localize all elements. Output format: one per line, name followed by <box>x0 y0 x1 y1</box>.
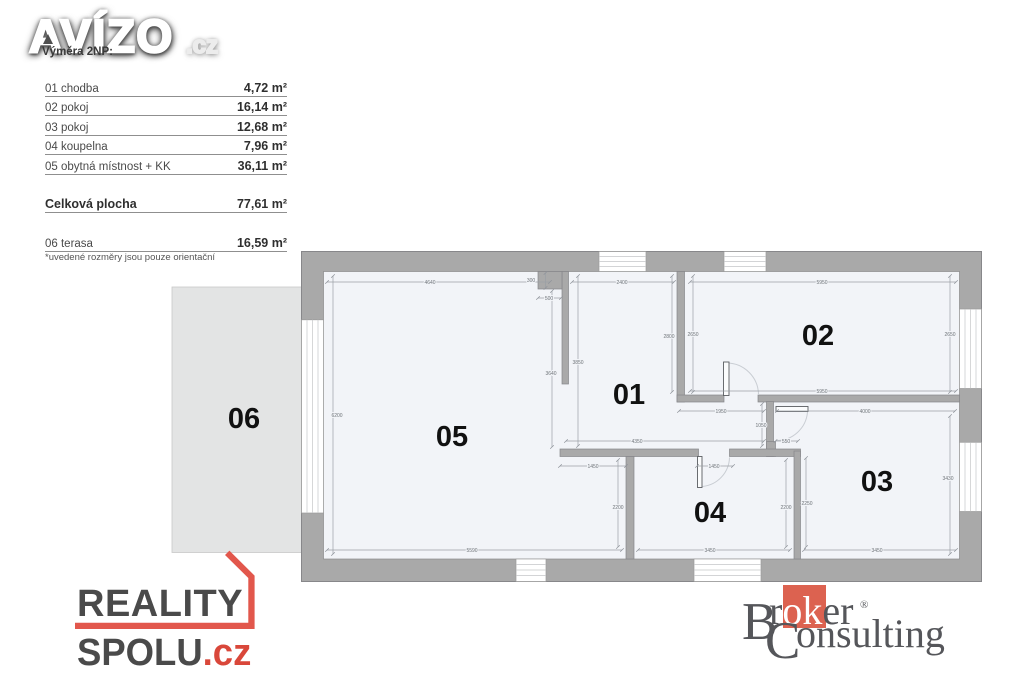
svg-text:500: 500 <box>545 296 554 302</box>
svg-text:01: 01 <box>613 379 645 411</box>
svg-text:4640: 4640 <box>424 280 435 286</box>
svg-text:05: 05 <box>436 421 468 453</box>
svg-text:4000: 4000 <box>859 409 870 415</box>
svg-text:3850: 3850 <box>572 360 583 366</box>
svg-text:2800: 2800 <box>663 334 674 340</box>
svg-text:1950: 1950 <box>715 409 726 415</box>
svg-text:02: 02 <box>802 320 834 352</box>
svg-text:6200: 6200 <box>331 413 342 419</box>
svg-text:2200: 2200 <box>780 505 791 511</box>
svg-text:300: 300 <box>527 278 536 284</box>
svg-text:1050: 1050 <box>755 423 766 429</box>
svg-text:2400: 2400 <box>616 280 627 286</box>
svg-text:03: 03 <box>861 466 893 498</box>
svg-text:1450: 1450 <box>587 464 598 470</box>
svg-text:550: 550 <box>782 439 791 445</box>
svg-text:3450: 3450 <box>704 548 715 554</box>
svg-text:3450: 3450 <box>871 548 882 554</box>
svg-text:06: 06 <box>228 403 260 435</box>
svg-text:04: 04 <box>694 497 726 529</box>
svg-text:5950: 5950 <box>816 280 827 286</box>
svg-text:5950: 5950 <box>816 389 827 395</box>
svg-text:3640: 3640 <box>545 371 556 377</box>
svg-text:2650: 2650 <box>944 332 955 338</box>
svg-text:1450: 1450 <box>708 464 719 470</box>
svg-text:2650: 2650 <box>687 332 698 338</box>
svg-text:2250: 2250 <box>801 501 812 507</box>
svg-text:5590: 5590 <box>466 548 477 554</box>
svg-text:3430: 3430 <box>942 476 953 482</box>
svg-text:2200: 2200 <box>612 505 623 511</box>
svg-text:4350: 4350 <box>631 439 642 445</box>
